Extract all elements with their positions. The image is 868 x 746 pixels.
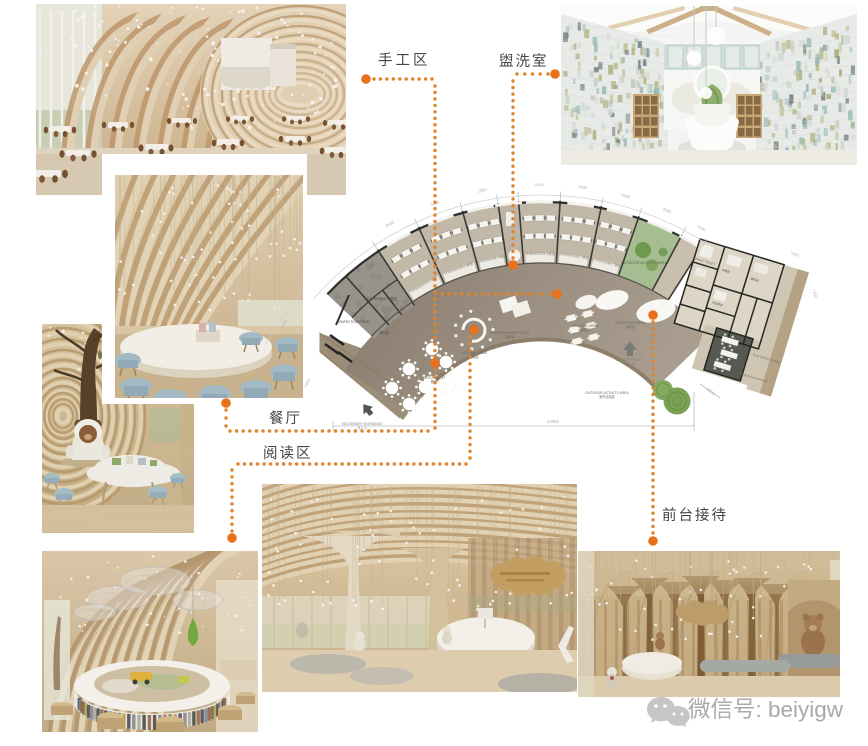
svg-text:5430: 5430	[385, 219, 396, 228]
svg-text:室外活动区: 室外活动区	[599, 394, 616, 399]
svg-text:7430: 7430	[696, 224, 707, 233]
svg-text:64089: 64089	[547, 419, 559, 424]
svg-text:盥洗室: 盥洗室	[499, 53, 549, 70]
svg-text:7430: 7430	[790, 250, 801, 258]
svg-text:4500: 4500	[662, 206, 673, 215]
svg-text:主入口: 主入口	[625, 361, 635, 366]
svg-text:5430: 5430	[621, 192, 632, 199]
svg-text:2980: 2980	[477, 187, 487, 194]
svg-text:手工区: 手工区	[378, 52, 431, 69]
svg-text:CLASSROOM 3 教室: CLASSROOM 3 教室	[525, 251, 555, 256]
svg-text:STOREROOM 储藏室: STOREROOM 储藏室	[365, 296, 398, 301]
svg-text:5430: 5430	[535, 182, 545, 187]
svg-text:OUTDOOR ACTIVITY AREA: OUTDOOR ACTIVITY AREA	[621, 261, 667, 265]
svg-text:餐厅: 餐厅	[269, 410, 302, 427]
svg-text:CONFECTION ROOM: CONFECTION ROOM	[337, 320, 370, 324]
svg-text:微信号: beiyigw: 微信号: beiyigw	[688, 697, 844, 722]
svg-text:娱乐区: 娱乐区	[505, 334, 515, 339]
svg-text:7430: 7430	[811, 289, 819, 300]
svg-text:绘画区: 绘画区	[580, 327, 590, 332]
svg-text:阅读区: 阅读区	[263, 445, 313, 462]
svg-text:接待区: 接待区	[625, 324, 635, 329]
svg-text:调乳室: 调乳室	[379, 330, 390, 335]
svg-text:5430: 5430	[578, 184, 588, 190]
svg-text:2980: 2980	[705, 387, 716, 397]
svg-text:前台接待: 前台接待	[662, 507, 728, 524]
